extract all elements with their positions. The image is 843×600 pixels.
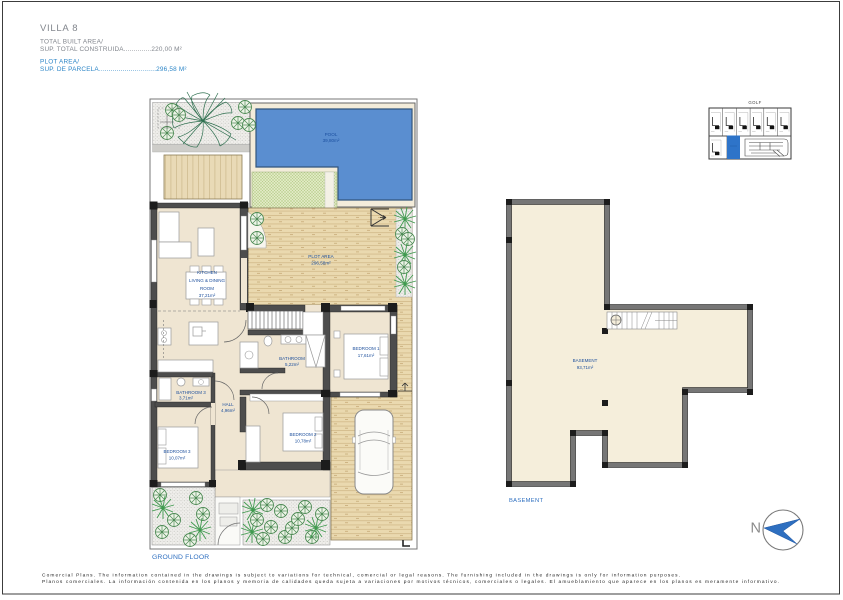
svg-text:GOLF: GOLF — [748, 100, 761, 105]
svg-text:5,22m²: 5,22m² — [285, 362, 300, 367]
svg-text:BEDROOM 3: BEDROOM 3 — [163, 449, 191, 454]
svg-text:KITCHEN: KITCHEN — [197, 270, 217, 275]
svg-text:39,80m²: 39,80m² — [323, 138, 340, 143]
svg-text:296,58m²: 296,58m² — [311, 261, 331, 266]
svg-text:GROUND FLOOR: GROUND FLOOR — [152, 554, 209, 561]
svg-text:SUP. DE PARCELA...............: SUP. DE PARCELA.........................… — [40, 66, 187, 73]
svg-text:SUP. TOTAL CONSTRUIDA.........: SUP. TOTAL CONSTRUIDA..............220,0… — [40, 46, 182, 53]
svg-text:PLOT AREA: PLOT AREA — [308, 254, 334, 259]
svg-text:POOL: POOL — [325, 132, 338, 137]
svg-text:10,78m²: 10,78m² — [295, 439, 312, 444]
svg-text:BATHROOM: BATHROOM — [279, 356, 305, 361]
svg-text:3,71m²: 3,71m² — [179, 396, 194, 401]
svg-text:PLOT AREA/: PLOT AREA/ — [40, 59, 79, 66]
svg-text:BEDROOM 2: BEDROOM 2 — [289, 432, 317, 437]
svg-text:BATHROOM 3: BATHROOM 3 — [176, 390, 206, 395]
svg-text:93,71m²: 93,71m² — [577, 365, 594, 370]
svg-text:4,96m²: 4,96m² — [221, 408, 236, 413]
svg-text:17,61m²: 17,61m² — [358, 353, 375, 358]
svg-text:VILLA 8: VILLA 8 — [40, 23, 78, 34]
svg-text:BASEMENT: BASEMENT — [509, 498, 543, 504]
svg-text:HALL: HALL — [222, 402, 234, 407]
svg-text:Planos comerciales. La informa: Planos comerciales. La información conte… — [42, 579, 779, 585]
svg-text:10,07m²: 10,07m² — [169, 456, 186, 461]
svg-text:N: N — [751, 521, 761, 537]
svg-text:TOTAL BUILT AREA/: TOTAL BUILT AREA/ — [40, 39, 103, 46]
svg-text:37,21m²: 37,21m² — [199, 293, 216, 298]
svg-text:LIVING & DINING: LIVING & DINING — [189, 278, 226, 283]
svg-text:BEDROOM 1: BEDROOM 1 — [352, 346, 380, 351]
svg-text:ROOM: ROOM — [200, 286, 214, 291]
svg-text:BASEMENT: BASEMENT — [573, 358, 598, 363]
